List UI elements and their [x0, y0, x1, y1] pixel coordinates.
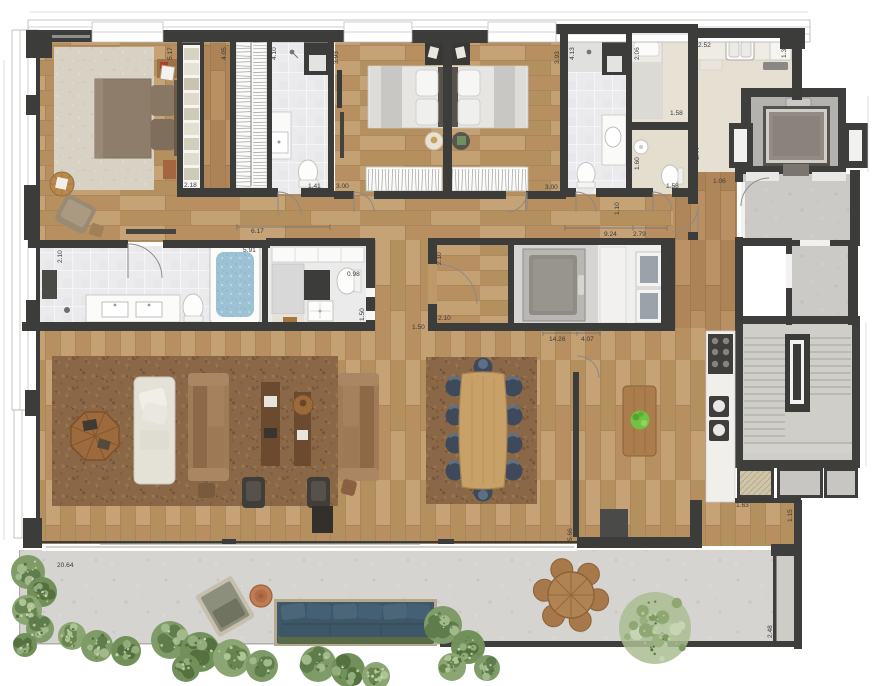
svg-text:1.58: 1.58	[666, 183, 679, 190]
svg-text:4.13: 4.13	[569, 47, 576, 60]
svg-text:5.91: 5.91	[243, 247, 256, 254]
svg-text:1.10: 1.10	[614, 202, 621, 215]
svg-text:5.17: 5.17	[167, 47, 174, 60]
svg-text:3.00: 3.00	[336, 183, 349, 190]
svg-text:14.26: 14.26	[549, 336, 566, 343]
svg-text:2.18: 2.18	[184, 182, 197, 189]
svg-text:1.41: 1.41	[308, 183, 321, 190]
svg-text:1.50: 1.50	[412, 324, 425, 331]
svg-text:7.66: 7.66	[667, 255, 674, 268]
svg-text:1.06: 1.06	[713, 178, 726, 185]
svg-text:1.63: 1.63	[736, 502, 749, 509]
svg-text:3.00: 3.00	[545, 184, 558, 191]
svg-text:3.44: 3.44	[694, 147, 701, 160]
svg-text:1.58: 1.58	[670, 110, 683, 117]
svg-text:4.10: 4.10	[271, 47, 278, 60]
svg-text:2.52: 2.52	[698, 42, 711, 49]
svg-text:2.10: 2.10	[436, 252, 443, 265]
svg-text:2.48: 2.48	[767, 625, 774, 638]
svg-text:4.05: 4.05	[221, 47, 228, 60]
svg-text:1.50: 1.50	[359, 308, 366, 321]
svg-text:1.36: 1.36	[781, 45, 788, 58]
svg-text:9.24: 9.24	[604, 231, 617, 238]
svg-text:20.64: 20.64	[57, 562, 74, 569]
svg-text:2.79: 2.79	[633, 231, 646, 238]
svg-text:5.66: 5.66	[567, 528, 574, 541]
svg-text:3.93: 3.93	[333, 51, 340, 64]
svg-text:3.93: 3.93	[554, 51, 561, 64]
svg-text:4.07: 4.07	[581, 336, 594, 343]
svg-text:2.06: 2.06	[634, 47, 641, 60]
svg-text:6.17: 6.17	[251, 228, 264, 235]
svg-text:2.10: 2.10	[57, 250, 64, 263]
svg-text:2.10: 2.10	[438, 315, 451, 322]
svg-text:0.98: 0.98	[347, 271, 360, 278]
svg-text:1.60: 1.60	[634, 157, 641, 170]
svg-text:1.15: 1.15	[787, 509, 794, 522]
